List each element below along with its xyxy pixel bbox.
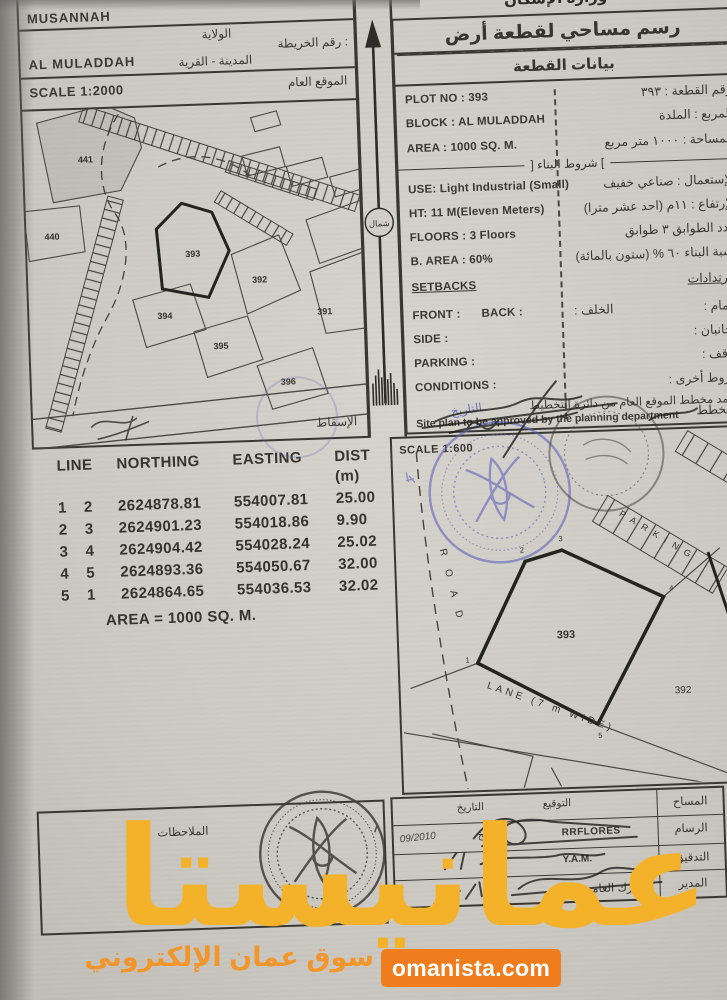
location-plan-panel: MUSANNAH الرقم المسلسل AL MULADDAH الولا…	[16, 0, 370, 450]
vertex-label-3: 3	[558, 534, 562, 543]
table-cell: 2	[58, 520, 85, 541]
wilaya-value: MUSANNAH	[27, 9, 111, 27]
table-cell: 554007.81	[234, 489, 337, 513]
header-row-scale: SCALE 1:2000 الموقع العام	[21, 68, 356, 112]
conditions-en: CONDITIONS :	[415, 379, 497, 394]
subject-plot-outline	[155, 202, 230, 299]
parcel-boundaries	[22, 100, 370, 450]
table-cell: 2624878.81	[118, 493, 235, 517]
table-cell: 1	[87, 585, 122, 606]
overview-plot-labels: 441 440 393 392 391 394 395 396	[42, 146, 335, 395]
building-conditions-separator: ] شروط البناء [	[398, 151, 727, 177]
back-en: BACK :	[481, 306, 523, 319]
plot-label-391: 391	[317, 306, 332, 317]
scale-1-600-label: SCALE 1:600	[399, 442, 473, 457]
plot-label-440: 440	[44, 232, 59, 243]
plot-label-441: 441	[78, 154, 93, 165]
wilaya-label: الولاية	[201, 26, 231, 41]
plot-393-label: 393	[557, 629, 576, 642]
road-label: ROAD	[437, 548, 468, 633]
city-value: AL MULADDAH	[28, 54, 135, 73]
front-ar: الأمام :	[703, 297, 727, 313]
projection-label: الإسقاط	[316, 414, 358, 429]
faint-blue-stamp-icon	[256, 376, 339, 459]
back-ar: الخلف :	[574, 301, 614, 317]
lane-label: LANE (7 m WIDE)	[486, 680, 616, 734]
parking-label: PARKING	[618, 508, 699, 562]
site-plan-panel: SCALE 1:600 ROAD PARKING	[390, 425, 727, 795]
col-header-northing: NORTHING	[116, 451, 233, 495]
scale-1-2000-label: SCALE 1:2000	[29, 82, 124, 100]
col-header-dist: DIST (m)	[334, 445, 391, 487]
table-cell: 4	[85, 541, 120, 562]
website-link-button[interactable]: omanista.com	[381, 949, 561, 987]
overview-map-drawing: 441 440 393 392 391 394 395 396	[22, 100, 370, 450]
lane-and-parcel-lines	[398, 547, 727, 792]
vertex-label-2: 2	[520, 546, 524, 555]
north-arrow-icon: شمال	[352, 0, 408, 438]
paper-edge-shadow	[0, 0, 34, 1000]
header-row-map-no: AL MULADDAH الولاية المدينة - القرية رقم…	[19, 20, 354, 80]
floors-en: FLOORS : 3 Floors	[410, 229, 517, 245]
plot-no-en: PLOT NO : 393	[405, 91, 488, 106]
paper-top-shadow	[0, 0, 420, 10]
dashed-road-lines	[62, 110, 258, 416]
block-boundary-bold	[708, 551, 727, 688]
plot-no-ar: رقم القطعة : ٣٩٣	[641, 81, 727, 99]
table-cell: 554028.24	[235, 533, 338, 557]
use-en: USE: Light Industrial (Small)	[408, 179, 569, 197]
general-site-label: الموقع العام	[288, 73, 348, 89]
dashed-divider	[554, 89, 568, 419]
parking-ar: موقف :	[702, 345, 727, 361]
blue-ministry-stamp-icon	[397, 407, 584, 581]
parking-en: PARKING :	[414, 356, 475, 370]
table-cell: 5	[61, 586, 88, 607]
table-cell: 4	[60, 564, 87, 585]
col-header-line: LINE	[56, 455, 117, 497]
floors-ar: عدد الطوابق ٣ طوابق	[625, 219, 727, 238]
table-cell: 2624901.23	[118, 515, 235, 539]
scanned-survey-document-photo: MUSANNAH الرقم المسلسل AL MULADDAH الولا…	[0, 0, 727, 1000]
table-cell: 1	[58, 498, 85, 519]
area-ar: المساحة : ١٠٠٠ متر مربع	[604, 130, 727, 150]
plot-393-outline	[474, 547, 668, 728]
building-conditions-header: ] شروط البناء [	[524, 155, 610, 172]
table-cell: 25.02	[337, 531, 394, 553]
handwritten-scribble	[91, 416, 150, 442]
block-ar: المربع : الملدة	[659, 105, 727, 123]
planner-label: المخطط	[696, 401, 727, 418]
table-cell: 554050.67	[236, 555, 339, 579]
plot-data-subtitle: بيانات القطعة	[394, 43, 727, 87]
use-ar: الإستعمال : صناعي خفيف	[603, 171, 727, 191]
table-cell: 32.00	[338, 553, 395, 575]
road-centerline	[416, 451, 468, 790]
table-cell: 25.00	[336, 487, 393, 509]
overview-map: 441 440 393 392 391 394 395 396 الإسقاط	[22, 100, 368, 449]
plot-label-392: 392	[252, 274, 267, 285]
north-label: شمال	[369, 218, 390, 229]
vertex-label-5: 5	[598, 731, 602, 740]
black-round-stamp-icon	[544, 391, 669, 516]
height-en: HT: 11 M(Eleven Meters)	[409, 204, 545, 221]
side-en: SIDE :	[413, 333, 448, 346]
approval-note-en: Site plan to be approved by the planning…	[416, 409, 679, 430]
table-cell: 2624904.42	[119, 537, 236, 561]
front-en: FRONT :	[412, 309, 460, 323]
city-village-label: المدينة - القرية	[178, 53, 252, 70]
height-ar: الإرتفاع : ١١م (احد عشر مترا)	[583, 195, 727, 215]
setbacks-en: SETBACKS	[411, 280, 476, 294]
map-no-label: رقم الخريطة :	[277, 34, 348, 50]
date-stamp-label: التاريخ	[450, 400, 483, 418]
table-cell: 3	[59, 542, 86, 563]
block-en: BLOCK : AL MULADDAH	[406, 114, 546, 131]
table-cell: 554018.86	[234, 511, 337, 535]
col-header-easting: EASTING	[232, 447, 335, 491]
parking-bays-hatching	[589, 428, 727, 597]
built-area-en: B. AREA : 60%	[410, 253, 493, 268]
table-cell: 5	[86, 563, 121, 584]
table-cell: 32.02	[339, 575, 396, 597]
plot-data-body: PLOT NO : 393 BLOCK : AL MULADDAH AREA :…	[396, 75, 727, 431]
coordinates-table: LINE NORTHING EASTING DIST (m) 1 2 26248…	[56, 445, 396, 631]
approval-note-ar: إعتمد مخطط الموقع العام من دائرة التخطيط	[529, 391, 727, 412]
conditions-ar: شروط أخرى :	[668, 369, 727, 387]
table-cell: 3	[84, 519, 119, 540]
plot-label-394: 394	[157, 311, 172, 322]
site-plan-drawing: ROAD PARKING	[392, 427, 727, 792]
vertex-label-4: 4	[669, 583, 673, 592]
table-cell: 2	[84, 497, 119, 518]
document-title: رسم مساحي لقطعة أرض	[393, 9, 727, 55]
north-arrowhead	[364, 19, 381, 48]
ministry-header-clipped: وزارة الإسكان	[450, 0, 661, 11]
plot-data-panel: رسم مساحي لقطعة أرض بيانات القطعة PLOT N…	[391, 7, 727, 435]
plot-392-label: 392	[675, 685, 692, 697]
watermark-tagline: سوق عمان الإلكتروني	[156, 942, 374, 973]
side-ar: الجانبان :	[694, 321, 727, 338]
plot-label-393: 393	[185, 249, 200, 260]
plot-vertex-numbers: 1 2 3 4 5	[461, 530, 678, 744]
road-parking-hatching	[35, 100, 368, 433]
area-en: AREA : 1000 SQ. M.	[407, 140, 518, 156]
elevation-bars-icon	[372, 369, 397, 406]
plot-label-395: 395	[213, 341, 228, 352]
watermark-text: عمانيستا	[130, 806, 710, 951]
vertex-label-1: 1	[465, 655, 469, 664]
built-area-ar: نسبة البناء ٦٠ % (ستون بالمائة)	[575, 243, 727, 264]
plot-vertex-dots	[472, 545, 670, 730]
setbacks-ar: الإرتدادات	[687, 269, 727, 286]
table-cell: 9.90	[336, 509, 393, 531]
table-cell: 2624893.36	[120, 559, 237, 583]
table-cell: 554036.53	[237, 577, 340, 601]
plot-label-396: 396	[281, 376, 296, 387]
area-total-text: AREA = 1000 SQ. M.	[106, 602, 396, 629]
table-cell: 2624864.65	[121, 581, 238, 605]
